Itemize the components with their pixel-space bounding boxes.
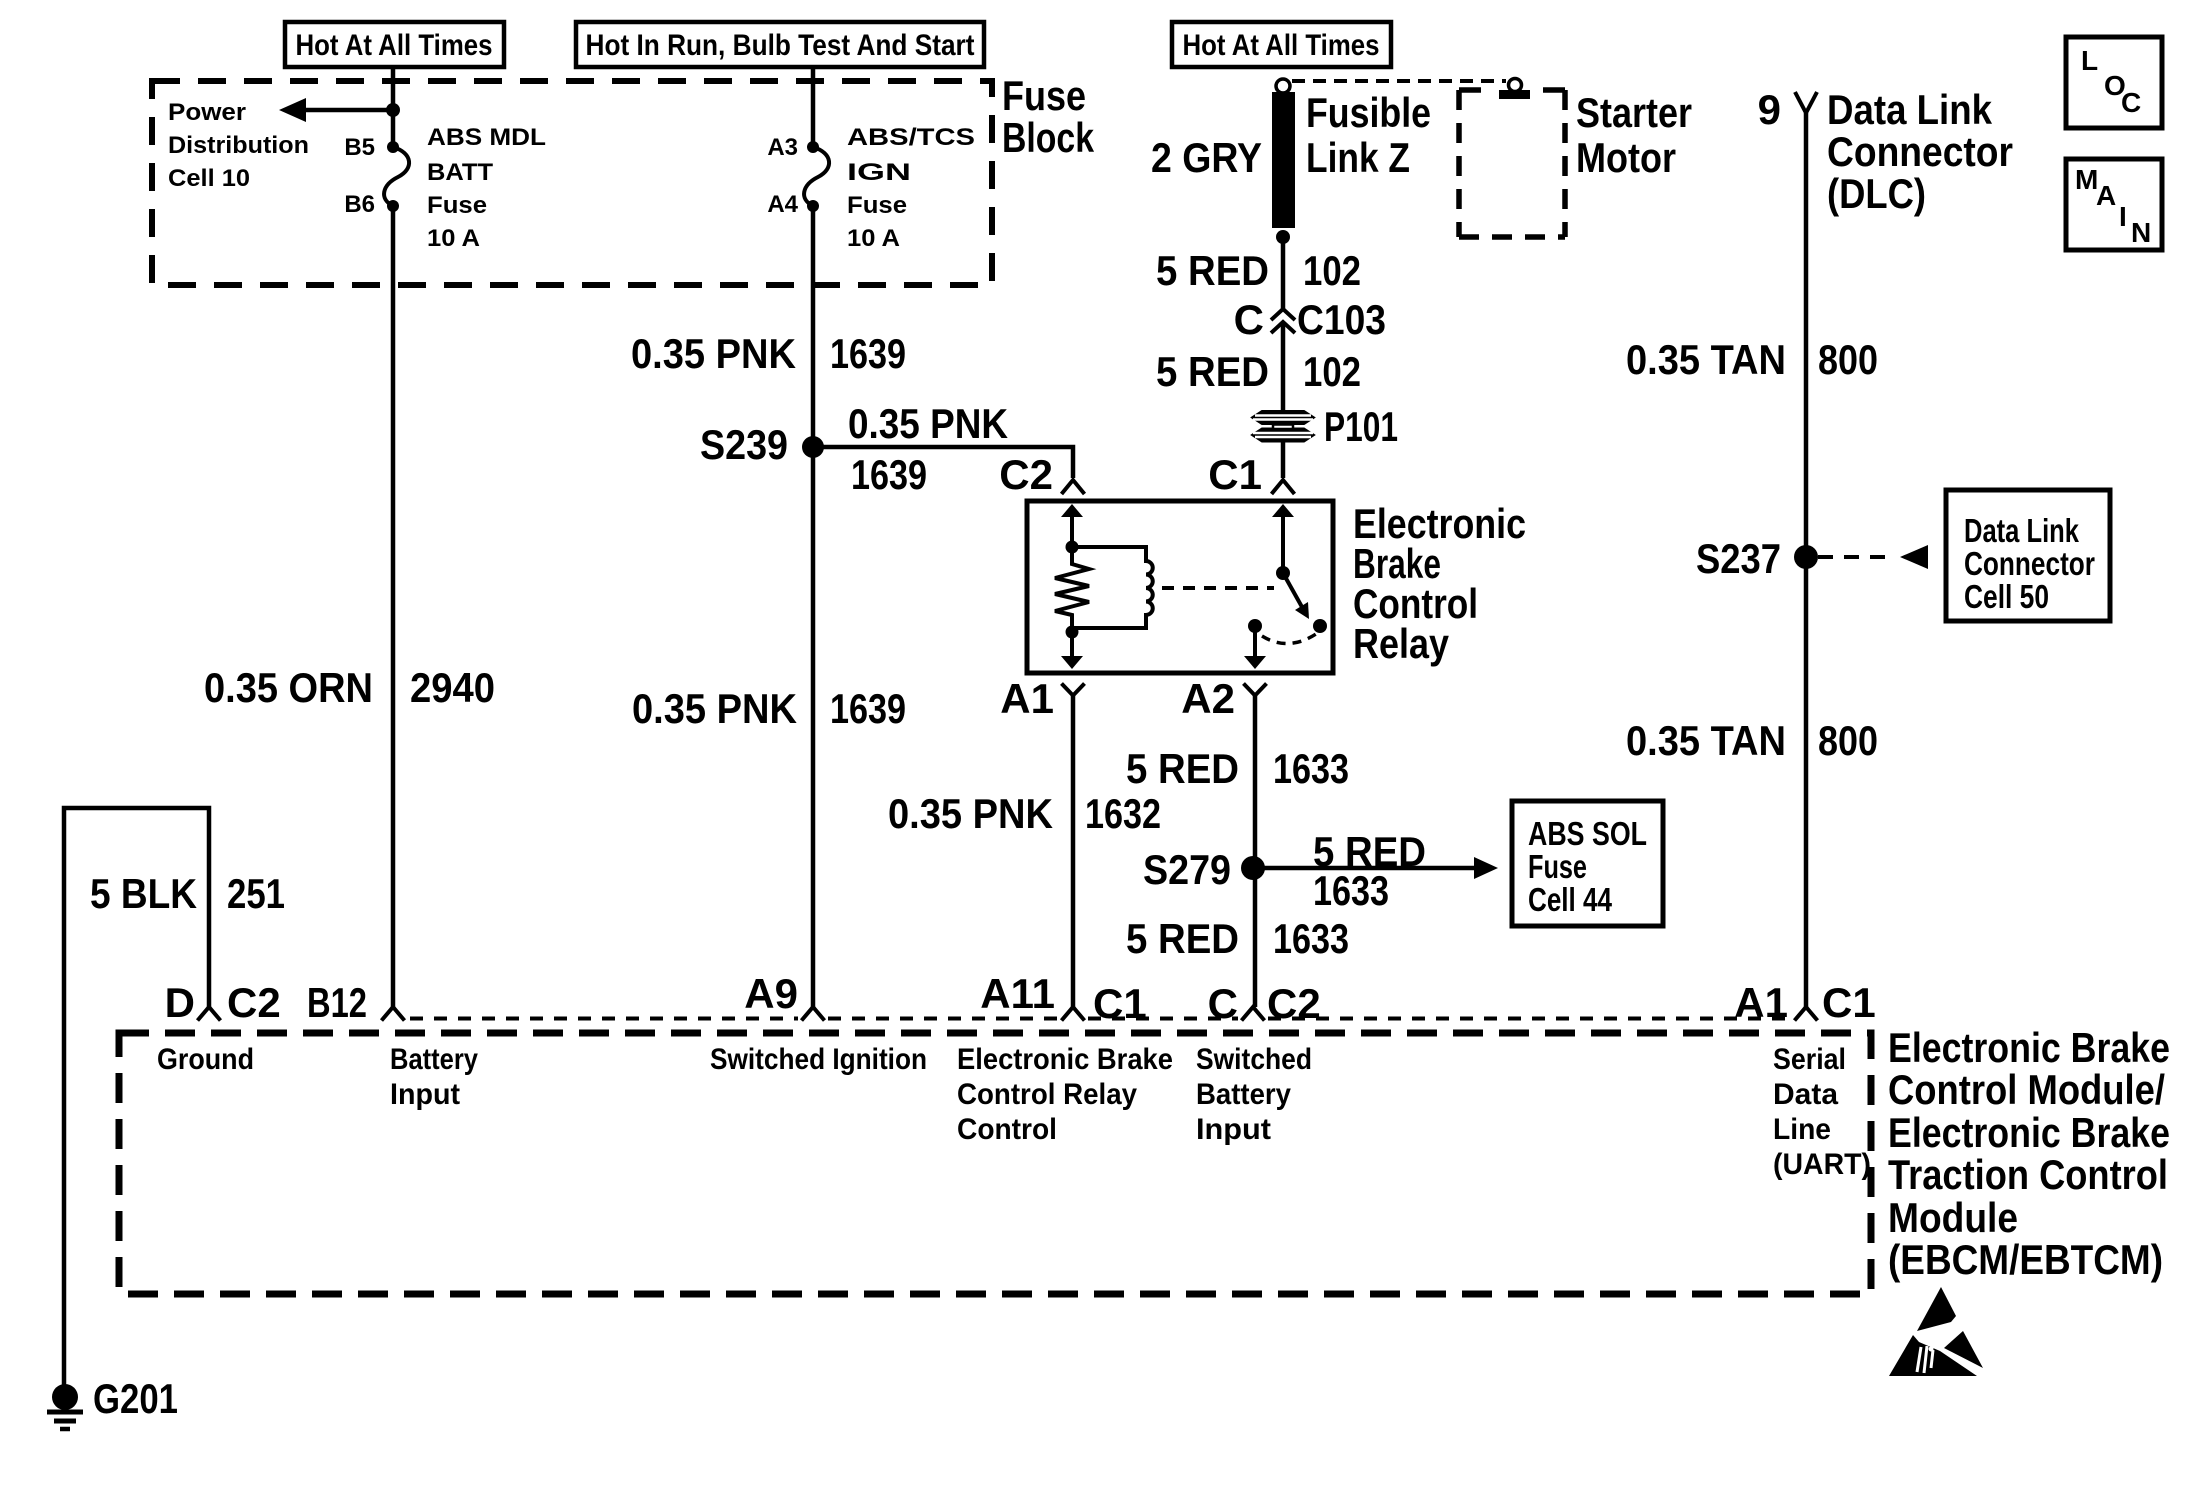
svg-text:Power: Power [168, 99, 246, 126]
svg-text:Module: Module [1888, 1194, 2018, 1241]
svg-text:N: N [2131, 217, 2151, 248]
svg-text:Starter: Starter [1576, 89, 1692, 136]
svg-text:Distribution: Distribution [168, 132, 309, 159]
svg-text:Control Relay: Control Relay [957, 1078, 1137, 1111]
svg-text:1639: 1639 [830, 685, 906, 732]
svg-text:A11: A11 [980, 970, 1055, 1017]
svg-text:M: M [2075, 164, 2098, 195]
svg-text:A1: A1 [1734, 979, 1788, 1026]
svg-text:10 A: 10 A [847, 225, 900, 252]
svg-text:Electronic Brake: Electronic Brake [1888, 1024, 2170, 1071]
svg-text:Electronic Brake: Electronic Brake [957, 1043, 1173, 1076]
svg-text:251: 251 [227, 870, 285, 917]
svg-text:800: 800 [1818, 336, 1878, 383]
svg-text:(DLC): (DLC) [1827, 170, 1926, 217]
svg-text:C2: C2 [1267, 980, 1321, 1027]
svg-text:Control Module/: Control Module/ [1888, 1066, 2165, 1113]
svg-text:2 GRY: 2 GRY [1151, 134, 1262, 181]
svg-text:S279: S279 [1143, 846, 1231, 893]
svg-text:1633: 1633 [1273, 745, 1349, 792]
svg-text:Fusible: Fusible [1306, 89, 1431, 136]
svg-text:IGN: IGN [847, 159, 911, 186]
svg-text:Connector: Connector [1827, 128, 2013, 175]
svg-text:1633: 1633 [1273, 915, 1349, 962]
svg-text:(EBCM/EBTCM): (EBCM/EBTCM) [1888, 1236, 2163, 1283]
svg-text:Switched: Switched [1196, 1043, 1312, 1076]
svg-text:G201: G201 [93, 1375, 178, 1422]
svg-text:Input: Input [390, 1078, 460, 1111]
svg-text:S237: S237 [1696, 535, 1781, 582]
svg-text:(UART): (UART) [1773, 1148, 1871, 1181]
svg-text:Link Z: Link Z [1306, 134, 1410, 181]
svg-text:C: C [2121, 87, 2141, 118]
svg-text:0.35 PNK: 0.35 PNK [848, 400, 1008, 447]
svg-text:A3: A3 [767, 134, 798, 161]
svg-text:A2: A2 [1181, 675, 1235, 722]
svg-text:I: I [2119, 201, 2127, 232]
svg-text:Data: Data [1773, 1078, 1838, 1111]
svg-text:5 RED: 5 RED [1156, 247, 1269, 294]
svg-text:Relay: Relay [1353, 620, 1450, 667]
svg-text:Data Link: Data Link [1964, 512, 2079, 549]
svg-text:0.35 PNK: 0.35 PNK [631, 330, 796, 377]
svg-text:Battery: Battery [1196, 1078, 1291, 1111]
svg-text:A4: A4 [767, 191, 798, 218]
svg-text:1633: 1633 [1313, 867, 1389, 914]
svg-text:Line: Line [1773, 1113, 1831, 1146]
svg-text:1632: 1632 [1085, 790, 1161, 837]
svg-text:Control: Control [957, 1113, 1057, 1146]
svg-text:1639: 1639 [830, 330, 906, 377]
svg-text:Traction Control: Traction Control [1888, 1151, 2168, 1198]
svg-text:B12: B12 [307, 979, 367, 1026]
svg-text:L: L [2081, 45, 2098, 76]
svg-text:BATT: BATT [427, 159, 493, 186]
svg-text:Data Link: Data Link [1827, 86, 1993, 133]
svg-text:Block: Block [1002, 114, 1095, 161]
svg-text:A1: A1 [1000, 675, 1054, 722]
svg-text:0.35 TAN: 0.35 TAN [1626, 717, 1786, 764]
svg-text:102: 102 [1303, 247, 1361, 294]
svg-text:Battery: Battery [390, 1043, 478, 1076]
svg-text:Fuse: Fuse [1002, 72, 1086, 119]
svg-text:Hot At All Times: Hot At All Times [1183, 29, 1380, 62]
svg-text:C1: C1 [1822, 979, 1876, 1026]
svg-text:Fuse: Fuse [847, 192, 907, 219]
svg-text:Fuse: Fuse [1528, 848, 1587, 885]
svg-text:Fuse: Fuse [427, 192, 487, 219]
svg-text:Serial: Serial [1773, 1043, 1846, 1076]
svg-text:S239: S239 [700, 421, 788, 468]
svg-text:800: 800 [1818, 717, 1878, 764]
svg-text:0.35 TAN: 0.35 TAN [1626, 336, 1786, 383]
svg-text:5 RED: 5 RED [1126, 745, 1239, 792]
svg-text:A9: A9 [744, 970, 798, 1017]
svg-text:0.35 PNK: 0.35 PNK [632, 685, 797, 732]
svg-text:C2: C2 [227, 979, 281, 1026]
svg-text:B5: B5 [344, 134, 375, 161]
svg-text:ABS/TCS: ABS/TCS [847, 124, 975, 151]
svg-text:0.35 PNK: 0.35 PNK [888, 790, 1053, 837]
svg-text:C103: C103 [1297, 296, 1386, 343]
svg-text:Cell 44: Cell 44 [1528, 881, 1613, 918]
svg-text:Hot In Run, Bulb Test And Star: Hot In Run, Bulb Test And Start [586, 29, 975, 62]
svg-text:Ground: Ground [157, 1043, 254, 1076]
svg-text:B6: B6 [344, 191, 375, 218]
svg-text:5 BLK: 5 BLK [90, 870, 197, 917]
svg-text:C: C [1234, 296, 1264, 343]
svg-text:D: D [165, 979, 195, 1026]
svg-text:9: 9 [1758, 86, 1781, 133]
svg-text:C: C [1208, 980, 1238, 1027]
svg-text:Electronic Brake: Electronic Brake [1888, 1109, 2170, 1156]
svg-text:Input: Input [1196, 1113, 1271, 1146]
svg-text:C1: C1 [1208, 451, 1262, 498]
svg-text:0.35 ORN: 0.35 ORN [204, 664, 373, 711]
svg-text:102: 102 [1303, 348, 1361, 395]
svg-text:A: A [2096, 180, 2116, 211]
svg-text:5 RED: 5 RED [1126, 915, 1239, 962]
svg-text:ABS SOL: ABS SOL [1528, 815, 1647, 852]
svg-text:Cell 10: Cell 10 [168, 165, 250, 192]
svg-text:Switched Ignition: Switched Ignition [710, 1043, 927, 1076]
svg-text:5 RED: 5 RED [1156, 348, 1269, 395]
svg-text:Motor: Motor [1576, 134, 1676, 181]
svg-text:Cell 50: Cell 50 [1964, 578, 2049, 615]
svg-text:C2: C2 [999, 451, 1053, 498]
svg-text:Connector: Connector [1964, 545, 2095, 582]
svg-text:P101: P101 [1324, 403, 1398, 450]
svg-text:ABS MDL: ABS MDL [427, 124, 546, 151]
svg-text:2940: 2940 [410, 664, 495, 711]
svg-text:C1: C1 [1093, 980, 1147, 1027]
svg-text:10 A: 10 A [427, 225, 480, 252]
svg-text:Hot At All Times: Hot At All Times [296, 29, 493, 62]
svg-text:1639: 1639 [851, 451, 927, 498]
